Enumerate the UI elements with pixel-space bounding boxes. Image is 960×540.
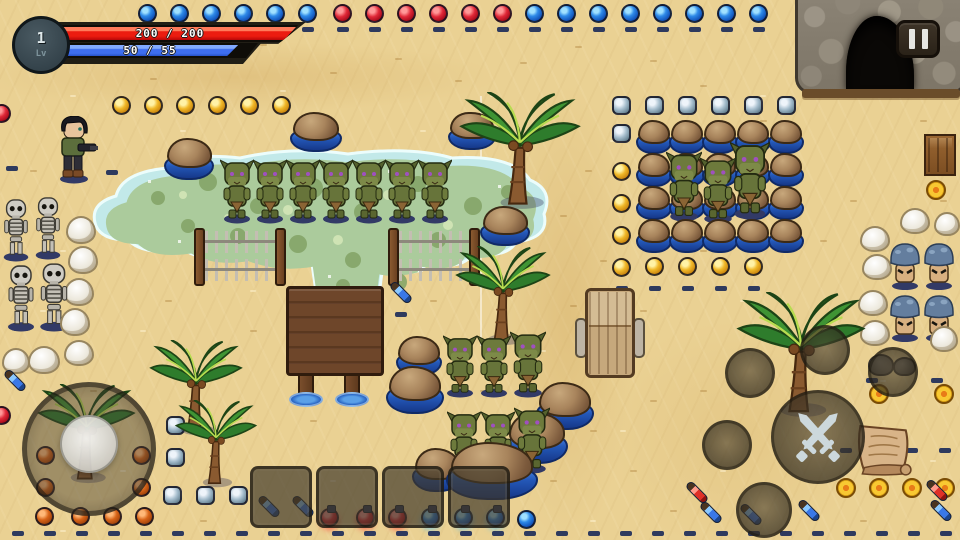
dash-marker (6, 166, 18, 171)
orb-gold (612, 194, 631, 213)
action-button-5[interactable] (868, 347, 918, 397)
dash-marker (106, 170, 118, 175)
dash-marker (649, 286, 661, 291)
dash-marker (689, 27, 701, 32)
dash-marker (939, 448, 951, 453)
orb-silver (163, 486, 182, 505)
orb-blue (621, 4, 640, 23)
dash-marker (465, 27, 477, 32)
hotbar-slot-2[interactable] (316, 466, 378, 528)
dash-marker (204, 531, 216, 536)
level-badge: 1 Lv (12, 16, 70, 74)
dash-marker (748, 286, 760, 291)
orb-silver (645, 96, 664, 115)
movement-joystick[interactable] (22, 382, 156, 516)
dash-marker (812, 531, 824, 536)
dash-marker (652, 531, 664, 536)
rock-in-water (768, 153, 804, 187)
hotbar-slot-4[interactable] (448, 466, 510, 528)
dash-marker (529, 27, 541, 32)
dash-marker (524, 531, 536, 536)
orb-orange (135, 507, 154, 526)
white-rock (64, 340, 94, 366)
orb-red (333, 4, 352, 23)
dash-marker (172, 531, 184, 536)
coin (934, 384, 954, 404)
goblin-enemy (443, 334, 477, 398)
white-rock (66, 216, 96, 244)
orb-blue (589, 4, 608, 23)
orb-blue (653, 4, 672, 23)
dash-marker (844, 531, 856, 536)
cave-dirt-edge (802, 89, 960, 98)
white-rock (860, 226, 890, 252)
level-label: Lv (15, 49, 67, 59)
goblin-enemy (418, 158, 452, 224)
orb-blue (685, 4, 704, 23)
hp-bar: 200 / 200 (60, 25, 298, 42)
dash-marker (428, 531, 440, 536)
rock-in-water (735, 219, 771, 253)
orb-gold (678, 257, 697, 276)
orb-silver (612, 96, 631, 115)
wooden-platform (286, 286, 384, 410)
mp-bar: 50 / 55 (60, 43, 258, 58)
orb-gold (612, 258, 631, 277)
orb-silver (777, 96, 796, 115)
orb-blue (234, 4, 253, 23)
dash-marker (682, 286, 694, 291)
action-button-2[interactable] (725, 348, 775, 398)
dash-marker (108, 531, 120, 536)
dash-marker (364, 531, 376, 536)
hotbar-slot-3[interactable] (382, 466, 444, 528)
orb-gold (240, 96, 259, 115)
rock-in-water (386, 366, 444, 414)
beach-chair (575, 288, 645, 380)
dash-marker (369, 27, 381, 32)
orb-gold (144, 96, 163, 115)
coin (902, 478, 922, 498)
dash-marker (236, 531, 248, 536)
mp-text: 50 / 55 (60, 44, 240, 57)
rock-in-water (669, 120, 705, 154)
dash-marker (302, 27, 314, 32)
dash-marker (657, 27, 669, 32)
orb-silver (612, 124, 631, 143)
dash-marker (716, 531, 728, 536)
dash-marker (76, 531, 88, 536)
palm-tree (455, 92, 585, 210)
dash-marker (12, 531, 24, 536)
white-rock (934, 212, 960, 236)
goblin-enemy (700, 156, 736, 224)
orb-silver (196, 486, 215, 505)
white-rock (28, 346, 60, 374)
goblin-enemy (730, 140, 770, 220)
coin (869, 478, 889, 498)
dash-marker (561, 27, 573, 32)
orb-blue (170, 4, 189, 23)
game-viewport: 200 / 200 50 / 55 1 Lv (0, 0, 960, 540)
orb-red (365, 4, 384, 23)
orb-gold (612, 226, 631, 245)
hotbar (250, 466, 510, 528)
orb-gold (711, 257, 730, 276)
orb-blue (138, 4, 157, 23)
dash-marker (588, 531, 600, 536)
orb-gold (744, 257, 763, 276)
skeleton-enemy (4, 264, 38, 332)
dash-marker (492, 531, 504, 536)
pause-icon (922, 29, 928, 49)
dash-marker (684, 531, 696, 536)
dash-marker (780, 531, 792, 536)
orb-blue (525, 4, 544, 23)
dash-marker (460, 531, 472, 536)
rock-in-water (290, 112, 342, 152)
orb-gold (272, 96, 291, 115)
hotbar-slot-1[interactable] (250, 466, 312, 528)
orb-blue (557, 4, 576, 23)
rock-in-water (480, 206, 530, 246)
goblin-enemy (319, 158, 353, 224)
orb-orange (35, 507, 54, 526)
mushroom-enemy (922, 238, 956, 290)
orb-silver (744, 96, 763, 115)
orb-red (493, 4, 512, 23)
orb-blue (749, 4, 768, 23)
joystick-knob[interactable] (60, 415, 118, 473)
dash-marker (593, 27, 605, 32)
dash-marker (940, 531, 952, 536)
orb-silver (711, 96, 730, 115)
action-button-1[interactable] (800, 325, 850, 375)
wooden-crate (924, 134, 956, 176)
action-button-3[interactable] (702, 420, 752, 470)
orb-gold (176, 96, 195, 115)
hp-text: 200 / 200 (60, 27, 280, 40)
pause-button[interactable] (896, 20, 940, 58)
rock-in-water (669, 219, 705, 253)
white-rock (930, 326, 958, 352)
mushroom-enemy (888, 238, 922, 290)
dash-marker (908, 531, 920, 536)
goblin-enemy (253, 158, 287, 224)
white-rock (68, 246, 98, 274)
mushroom-enemy (888, 290, 922, 342)
player-character (54, 116, 98, 184)
fence (194, 228, 286, 286)
coin (836, 478, 856, 498)
dash-marker (876, 531, 888, 536)
dash-marker (497, 27, 509, 32)
dash-marker (625, 27, 637, 32)
coin (926, 180, 946, 200)
dash-marker (396, 531, 408, 536)
dash-marker (556, 531, 568, 536)
goblin-enemy (352, 158, 386, 224)
dash-marker (337, 27, 349, 32)
goblin-enemy (385, 158, 419, 224)
orb-red (397, 4, 416, 23)
rock-in-water (702, 219, 738, 253)
dash-marker (715, 286, 727, 291)
crossed-swords-icon (791, 410, 845, 464)
orb-red (461, 4, 480, 23)
sand-marks (0, 0, 6, 2)
palm-tree (172, 400, 260, 488)
pause-icon (909, 29, 915, 49)
dash-marker (44, 531, 56, 536)
rock-in-water (636, 120, 672, 154)
action-button-4[interactable] (736, 482, 792, 538)
skeleton-enemy (32, 196, 64, 260)
white-rock (60, 308, 90, 336)
dash-marker (753, 27, 765, 32)
rock-in-water (768, 120, 804, 154)
dash-marker (395, 312, 407, 317)
attack-button[interactable] (771, 390, 865, 484)
orb-silver (229, 486, 248, 505)
orb-blue (266, 4, 285, 23)
skeleton-enemy (0, 198, 32, 262)
orb-gold (112, 96, 131, 115)
orb-blue (517, 510, 536, 529)
dash-marker (300, 531, 312, 536)
rock-in-water (768, 219, 804, 253)
orb-blue (717, 4, 736, 23)
level-value: 1 (15, 29, 67, 47)
rock-in-water (164, 138, 214, 180)
orb-red (429, 4, 448, 23)
dash-marker (931, 378, 943, 383)
dash-marker (620, 531, 632, 536)
orb-gold (612, 162, 631, 181)
goblin-enemy (286, 158, 320, 224)
dash-marker (332, 531, 344, 536)
goblin-enemy (477, 334, 511, 398)
rock-in-water (636, 219, 672, 253)
rock-in-water (768, 186, 804, 220)
dash-marker (433, 27, 445, 32)
orb-blue (298, 4, 317, 23)
orb-gold (645, 257, 664, 276)
orb-silver (678, 96, 697, 115)
white-rock (900, 208, 930, 234)
dash-marker (401, 27, 413, 32)
dash-marker (268, 531, 280, 536)
goblin-enemy (220, 158, 254, 224)
dash-marker (140, 531, 152, 536)
orb-gold (208, 96, 227, 115)
dash-marker (721, 27, 733, 32)
orb-blue (202, 4, 221, 23)
goblin-enemy (666, 150, 702, 222)
